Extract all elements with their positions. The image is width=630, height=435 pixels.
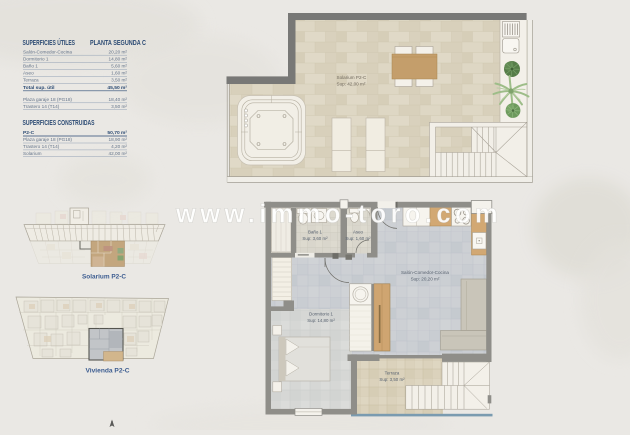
svg-text:Dormitorio 1: Dormitorio 1 [309,312,333,317]
svg-text:Terraza: Terraza [23,78,39,83]
svg-text:1,60 m²: 1,60 m² [111,71,127,76]
svg-text:Vivienda P2-C: Vivienda P2-C [86,368,130,375]
svg-text:Plaza garaje 18 (PG18): Plaza garaje 18 (PG18) [23,137,72,142]
svg-text:SUPERFICIES ÚTILES: SUPERFICIES ÚTILES [23,38,76,47]
svg-text:Salón-Comedor-Cocina: Salón-Comedor-Cocina [23,49,72,54]
svg-text:18,90 m²: 18,90 m² [109,137,128,142]
svg-text:Sup: 3,50 m²: Sup: 3,50 m² [379,377,405,382]
svg-text:Trastero 14 (T14): Trastero 14 (T14) [23,144,60,149]
svg-text:50,70 m²: 50,70 m² [107,130,127,136]
svg-text:Sup: 20,20 m²: Sup: 20,20 m² [411,276,440,281]
svg-text:Dormitorio 1: Dormitorio 1 [23,57,49,62]
svg-text:Trastero 14 (T14): Trastero 14 (T14) [23,104,60,109]
svg-text:42,00 m²: 42,00 m² [109,151,128,156]
svg-text:Sup: 1,60 m²: Sup: 1,60 m² [345,236,371,241]
svg-text:Sup: 3,60 m²: Sup: 3,60 m² [302,236,328,241]
svg-text:Solarium P2-C: Solarium P2-C [82,273,126,280]
svg-text:Solarium: Solarium [23,151,42,156]
svg-text:4,20 m²: 4,20 m² [111,144,127,149]
svg-text:P2-C: P2-C [23,130,35,136]
svg-text:18,40 m²: 18,40 m² [109,97,128,102]
svg-text:Aseo: Aseo [353,229,364,234]
svg-text:PLANTA SEGUNDA C: PLANTA SEGUNDA C [90,40,146,47]
svg-text:Salón-Comedor-Cocina: Salón-Comedor-Cocina [401,270,449,275]
svg-text:3,50 m²: 3,50 m² [111,104,127,109]
svg-text:Aseo: Aseo [23,71,34,76]
svg-text:Sup: 42,00 m²: Sup: 42,00 m² [337,81,366,86]
svg-text:SUPERFICIES CONSTRUIDAS: SUPERFICIES CONSTRUIDAS [23,120,95,127]
svg-text:14,80 m²: 14,80 m² [109,57,128,62]
svg-text:45,50 m²: 45,50 m² [107,85,127,91]
svg-text:Sup: 14,80 m²: Sup: 14,80 m² [307,318,335,323]
svg-text:Solarium P2-C: Solarium P2-C [337,75,368,80]
svg-text:Total sup. útil: Total sup. útil [23,85,55,91]
svg-text:5,60 m²: 5,60 m² [111,64,127,69]
svg-text:Baño 1: Baño 1 [308,229,322,234]
svg-text:Baño 1: Baño 1 [23,64,38,69]
svg-text:Terraza: Terraza [385,370,400,375]
svg-text:3,50 m²: 3,50 m² [111,78,127,83]
svg-text:Plaza garaje 18 (PG18): Plaza garaje 18 (PG18) [23,97,72,102]
svg-text:20,20 m²: 20,20 m² [109,49,128,54]
svg-text:www.immo-toro.com: www.immo-toro.com [175,201,502,229]
